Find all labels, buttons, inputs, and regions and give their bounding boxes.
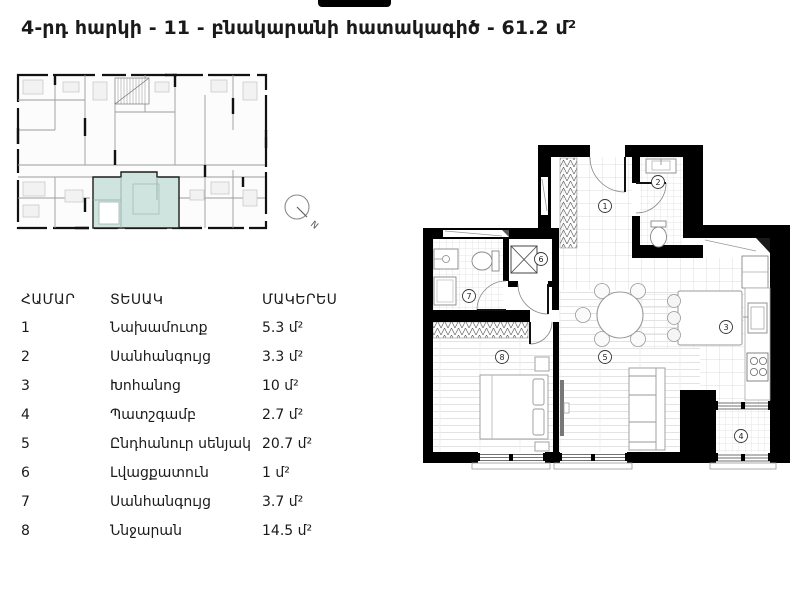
room-number: 3 <box>723 323 728 332</box>
table-row: 2 Սանհանգույց 3.3 մ² <box>21 342 361 371</box>
room-label-8: 8 <box>496 351 509 364</box>
row-area: 3.7 մ² <box>262 494 361 510</box>
row-name: Սանհանգույց <box>110 494 262 510</box>
toilet-2 <box>651 221 667 247</box>
table-row: 3 Խոհանոց 10 մ² <box>21 371 361 400</box>
top-bar <box>318 0 391 7</box>
compass-label: N <box>308 220 320 232</box>
overview-building <box>18 75 266 228</box>
row-number: 4 <box>21 407 110 423</box>
row-number: 8 <box>21 523 110 539</box>
room-number: 4 <box>738 432 743 441</box>
row-number: 7 <box>21 494 110 510</box>
room-number: 7 <box>466 292 471 301</box>
row-area: 2.7 մ² <box>262 407 361 423</box>
row-area: 5.3 մ² <box>262 320 361 336</box>
staircase <box>115 78 149 104</box>
row-number: 1 <box>21 320 110 336</box>
table-row: 6 Լվացքատուն 1 մ² <box>21 458 361 487</box>
table-row: 8 Ննջարան 14.5 մ² <box>21 516 361 545</box>
row-name: Ննջարան <box>110 523 262 539</box>
sink-7 <box>434 249 458 269</box>
row-name: Սանհանգույց <box>110 349 262 365</box>
room-number: 8 <box>499 353 504 362</box>
washing-machine <box>511 246 537 273</box>
row-number: 3 <box>21 378 110 394</box>
row-number: 6 <box>21 465 110 481</box>
table-row: 4 Պատշգամբ 2.7 մ² <box>21 400 361 429</box>
table-header-number: ՀԱՄԱՐ <box>21 292 110 308</box>
table-row: 1 Նախամուտք 5.3 մ² <box>21 313 361 342</box>
room-label-2: 2 <box>652 176 665 189</box>
sink-2 <box>646 159 676 173</box>
room-number: 6 <box>538 255 543 264</box>
table-header-area: ՄԱԿԵՐԵՍ <box>262 292 361 308</box>
page-title: 4-րդ հարկի - 11 - բնակարանի հատակագիծ - … <box>21 17 576 39</box>
room-label-4: 4 <box>735 430 748 443</box>
row-area: 10 մ² <box>262 378 361 394</box>
row-area: 1 մ² <box>262 465 361 481</box>
kitchen-island <box>668 291 743 345</box>
shower-tray <box>434 277 456 305</box>
row-name: Պատշգամբ <box>110 407 262 423</box>
room-label-3: 3 <box>720 321 733 334</box>
apartment-floor-plan: 1 2 3 4 5 6 7 8 <box>420 125 795 505</box>
row-name: Լվացքատուն <box>110 465 262 481</box>
room-label-5: 5 <box>599 351 612 364</box>
table-header-row: ՀԱՄԱՐ ՏԵՍԱԿ ՄԱԿԵՐԵՍ <box>21 287 361 313</box>
table-row: 7 Սանհանգույց 3.7 մ² <box>21 487 361 516</box>
toilet-7 <box>472 251 499 271</box>
room-label-1: 1 <box>599 200 612 213</box>
rooms-table: ՀԱՄԱՐ ՏԵՍԱԿ ՄԱԿԵՐԵՍ 1 Նախամուտք 5.3 մ² 2… <box>21 287 361 545</box>
row-area: 3.3 մ² <box>262 349 361 365</box>
row-number: 5 <box>21 436 110 452</box>
laundry-door-arc <box>518 284 548 314</box>
row-name: Խոհանոց <box>110 378 262 394</box>
room-number: 5 <box>602 353 607 362</box>
row-area: 20.7 մ² <box>262 436 361 452</box>
table-header-type: ՏԵՍԱԿ <box>110 292 262 308</box>
row-area: 14.5 մ² <box>262 523 361 539</box>
room-label-6: 6 <box>535 253 548 266</box>
row-name: Ընդհանուր սենյակ <box>110 436 262 452</box>
row-name: Նախամուտք <box>110 320 262 336</box>
overview-highlighted-unit <box>93 172 179 228</box>
sofa <box>629 368 665 450</box>
table-row: 5 Ընդհանուր սենյակ 20.7 մ² <box>21 429 361 458</box>
room-number: 1 <box>602 202 607 211</box>
compass-icon: N <box>285 195 320 232</box>
floor-overview: N <box>15 70 325 235</box>
fridge <box>742 256 768 288</box>
room-number: 2 <box>655 178 660 187</box>
room-label-7: 7 <box>463 290 476 303</box>
row-number: 2 <box>21 349 110 365</box>
